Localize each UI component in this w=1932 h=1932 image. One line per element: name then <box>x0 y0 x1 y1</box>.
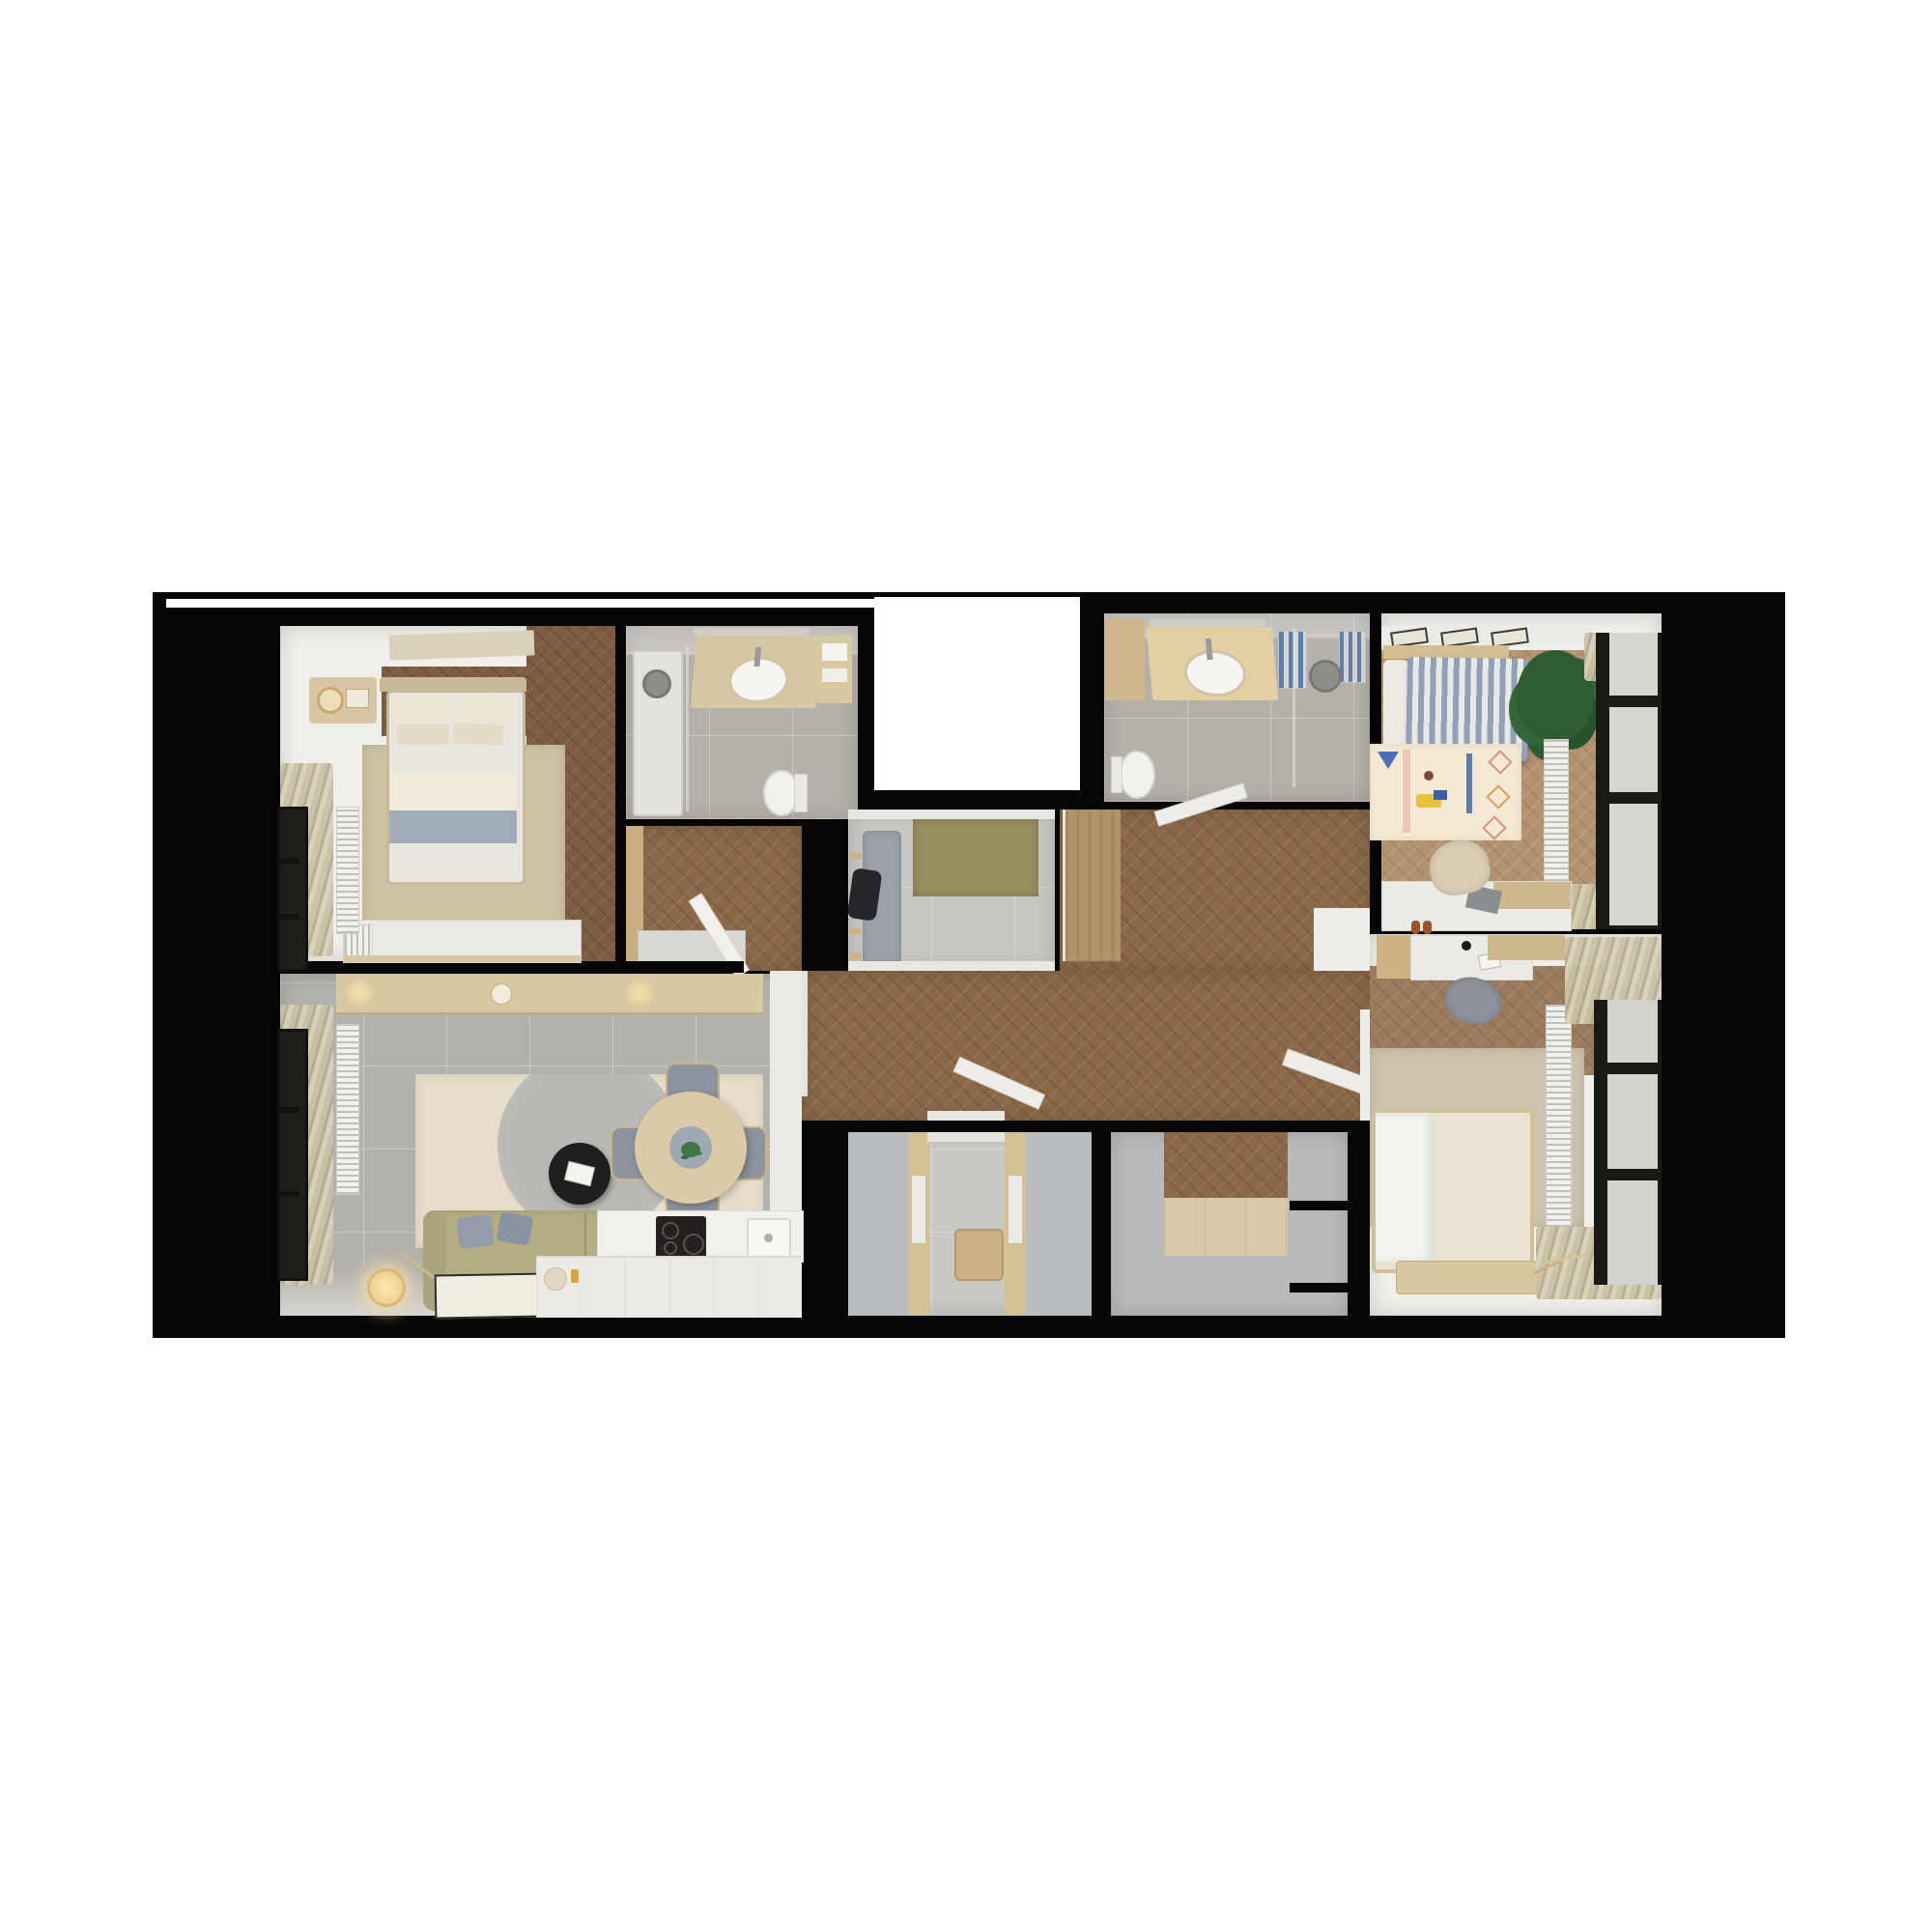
shower-glass-screen <box>686 645 689 811</box>
wood-cabinet <box>1104 618 1145 700</box>
storage-shelf <box>1339 631 1366 683</box>
walkin-closet <box>1111 1132 1348 1316</box>
vanity-mirror <box>1150 619 1265 627</box>
rug-diamond-motif <box>1482 815 1506 839</box>
side-panel <box>1026 1132 1092 1316</box>
floor-lamp <box>367 1268 406 1307</box>
niche-floor <box>1164 1198 1288 1256</box>
bedroom3 <box>1370 934 1662 1316</box>
burner <box>664 1241 677 1255</box>
threshold <box>848 961 1055 971</box>
entry-light-band <box>848 810 1055 819</box>
living-kitchen <box>280 974 802 1316</box>
decor-plate <box>491 983 512 1005</box>
entry-hall <box>848 810 1055 971</box>
double-bed <box>386 690 526 885</box>
pillow <box>397 724 449 745</box>
pillow <box>452 723 503 747</box>
pillow <box>457 696 514 723</box>
hallway-horizontal <box>802 971 1372 1121</box>
niche-wood-wall <box>1164 1132 1288 1198</box>
table-lamp-glow <box>346 980 373 1007</box>
dining-table <box>635 1092 747 1204</box>
drain <box>764 1234 773 1242</box>
bathroom2 <box>1104 613 1370 802</box>
utility-room <box>848 1132 1092 1316</box>
window <box>1594 1000 1662 1285</box>
white-blanket <box>1376 1113 1434 1262</box>
double-bed <box>1372 1109 1534 1273</box>
window <box>277 807 308 972</box>
shower-head <box>1309 660 1342 693</box>
radiator <box>336 1024 359 1195</box>
partition-wall <box>1290 1201 1348 1210</box>
burner <box>662 1222 679 1239</box>
sideboard <box>336 974 763 1014</box>
window <box>277 1029 308 1281</box>
window-pane <box>1607 1180 1658 1285</box>
foot-bench <box>1396 1261 1538 1294</box>
window-mullion <box>280 1107 299 1113</box>
bedroom1 <box>280 626 615 961</box>
sink <box>1182 650 1248 696</box>
dresser <box>343 920 582 963</box>
threshold <box>927 1111 1005 1121</box>
desk-wood-cabinet <box>1493 882 1571 909</box>
hallway-vertical <box>1060 810 1370 971</box>
window-pane <box>1609 804 1658 925</box>
apartment-outline <box>153 592 1785 1338</box>
sink-vanity <box>691 636 823 708</box>
void-lightwell <box>874 597 1080 790</box>
cushion <box>497 1211 534 1245</box>
rug-triangle-motif <box>1378 752 1399 769</box>
bathroom1 <box>626 626 858 819</box>
shower-tray <box>633 650 683 816</box>
potted-plant <box>1517 650 1594 742</box>
window-pane <box>1609 707 1658 792</box>
towels <box>822 668 847 682</box>
bedroom2-kids <box>1381 613 1662 929</box>
picture-shelf <box>1381 626 1594 647</box>
floor-plan-render <box>0 0 1932 1932</box>
window-mullion <box>280 1191 299 1197</box>
threshold <box>802 971 808 1096</box>
closet-niche <box>1164 1132 1288 1256</box>
wall-segment <box>626 961 744 973</box>
dresser-wood-edge <box>344 955 581 962</box>
wardrobe <box>1063 810 1121 961</box>
toilet <box>1111 747 1155 797</box>
slippers <box>1423 921 1432 934</box>
kitchen-counter <box>597 1210 804 1263</box>
doorway-to-bedroom2 <box>1314 908 1370 971</box>
duvet-blue-band <box>389 810 517 843</box>
partition-wall <box>1290 1283 1348 1293</box>
kitchen-wall-slab <box>770 971 802 1215</box>
rug-dot-motif <box>1424 771 1434 781</box>
toilet-bowl <box>1119 751 1155 799</box>
cabinet-door <box>1009 1176 1022 1243</box>
play-rug <box>1370 744 1521 840</box>
side-panel <box>848 1132 908 1316</box>
kitchen-sink <box>747 1218 791 1259</box>
cooktop <box>656 1216 706 1259</box>
desk-wood-cabinet <box>1488 935 1565 960</box>
pillow <box>393 696 452 723</box>
cabinet-door <box>912 1176 925 1243</box>
table-lamp-glow <box>626 980 653 1007</box>
rug-diamond-motif <box>1486 784 1510 809</box>
rug-diamond-motif <box>1488 750 1512 774</box>
window <box>1596 633 1662 929</box>
radiator <box>336 807 359 934</box>
top-facade-strip <box>166 599 874 608</box>
rug-bird-motif <box>1434 790 1447 800</box>
burner <box>683 1234 704 1255</box>
entry-rug <box>913 819 1038 896</box>
pillow <box>1383 660 1408 754</box>
duvet-cream-band <box>389 772 517 810</box>
decor-bottle <box>571 1269 579 1283</box>
nightstand <box>309 677 377 724</box>
vanity-mirror <box>694 628 810 636</box>
slippers <box>1411 921 1420 934</box>
towels <box>822 643 847 661</box>
tray <box>346 689 369 708</box>
toilet-tank <box>794 774 808 812</box>
rug-stripe-motif <box>1403 750 1410 833</box>
open-door <box>953 1057 1046 1110</box>
radiator <box>1546 1005 1572 1234</box>
window-mullion <box>280 914 299 920</box>
window-pane <box>1607 1000 1658 1063</box>
window-mullion <box>280 858 299 864</box>
wall-art <box>389 630 535 660</box>
toilet <box>763 766 806 816</box>
kitchen-island <box>536 1256 802 1318</box>
window-pane <box>1609 633 1658 696</box>
threshold <box>927 1132 1005 1142</box>
faucet <box>1206 639 1213 660</box>
shower-head <box>642 669 671 698</box>
table-plant <box>681 1142 700 1157</box>
coffee-table <box>549 1143 611 1205</box>
desk-lamp <box>1462 941 1471 951</box>
sink-vanity <box>1147 627 1279 700</box>
decor-plate <box>544 1267 567 1291</box>
window-pane <box>1607 1074 1658 1169</box>
laptop <box>564 1161 595 1186</box>
stool <box>954 1229 1004 1281</box>
duvet-foot-band <box>389 843 517 876</box>
toilet-tank <box>1111 756 1122 793</box>
shower-glass-screen <box>1293 628 1295 787</box>
table-lamp <box>317 687 344 714</box>
cushion <box>456 1214 495 1250</box>
rug-stripe-motif <box>1466 753 1472 813</box>
corridor <box>626 826 802 971</box>
towel-shelf <box>817 636 852 703</box>
